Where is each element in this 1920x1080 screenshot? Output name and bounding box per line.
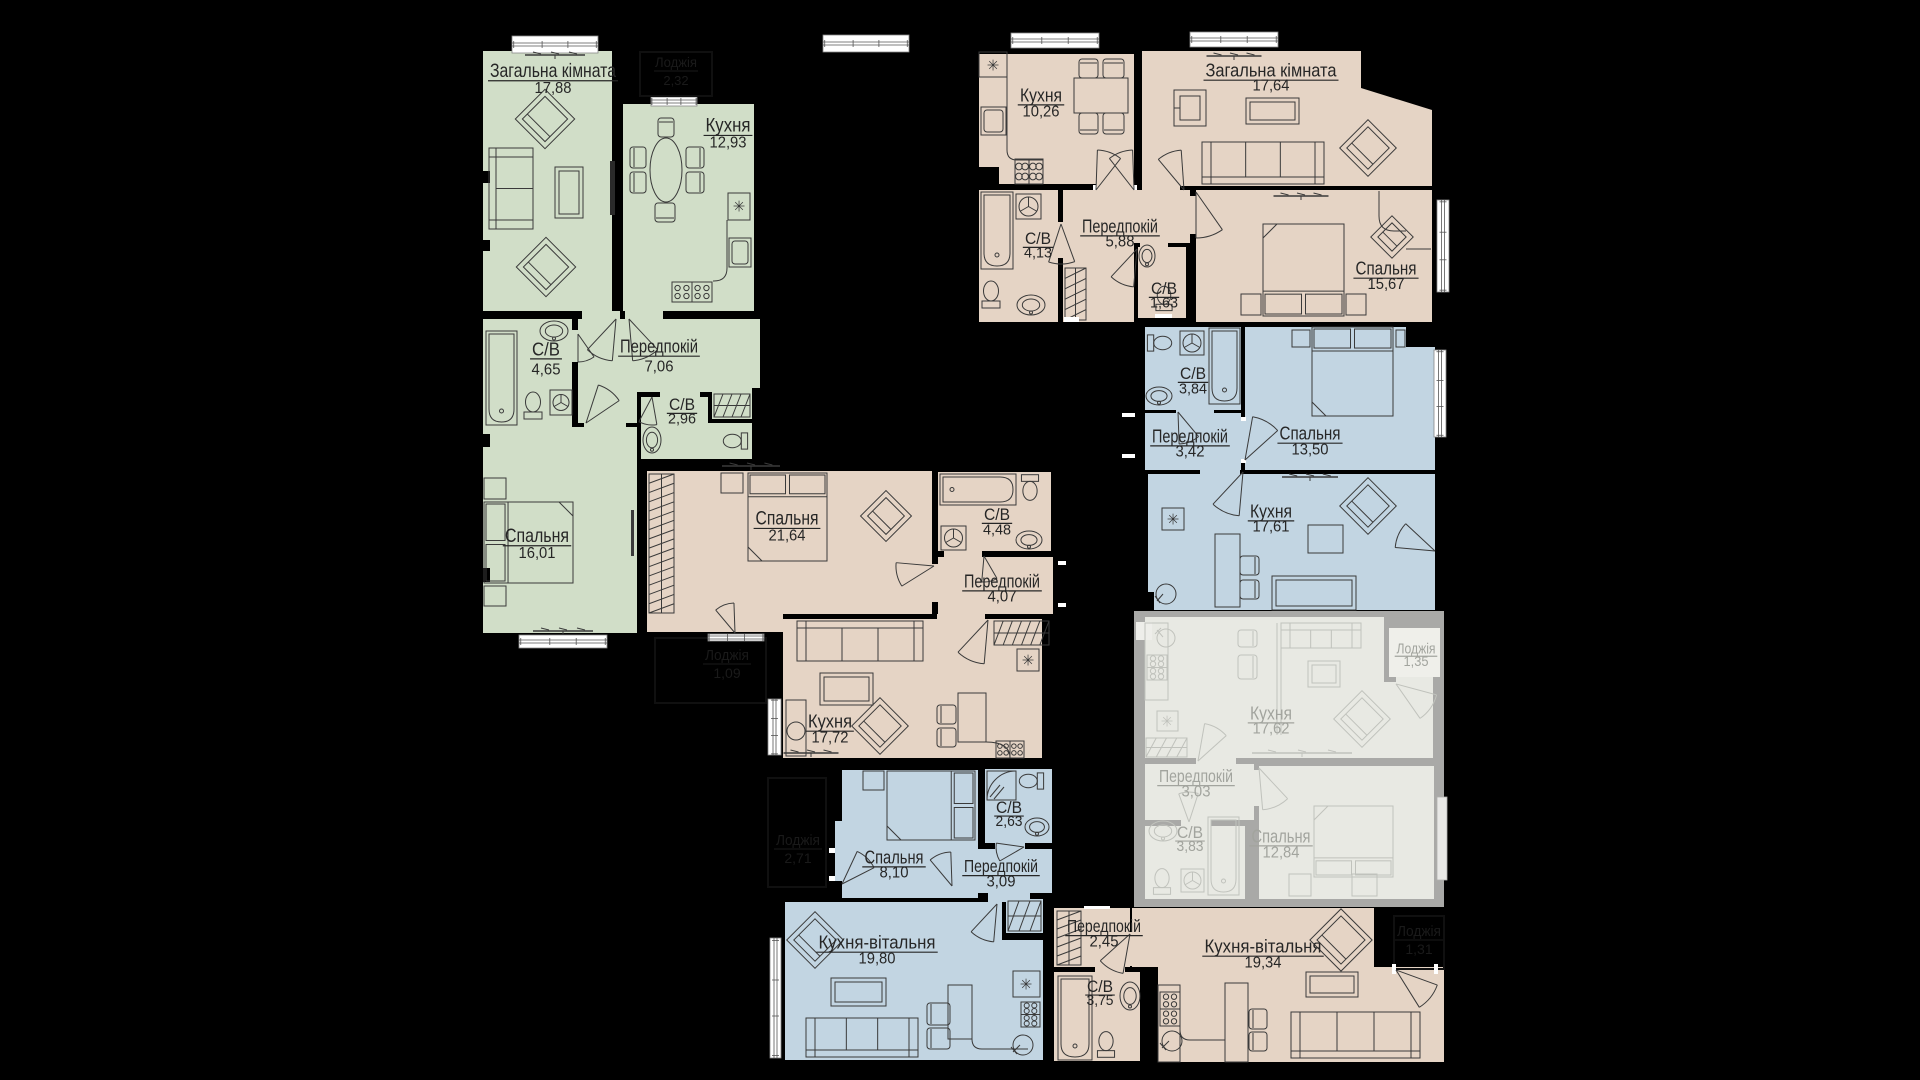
svg-text:✳: ✳ (1022, 652, 1035, 669)
svg-text:1,31: 1,31 (1405, 941, 1432, 957)
svg-text:17,61: 17,61 (1253, 519, 1290, 536)
svg-text:✳: ✳ (1167, 511, 1180, 528)
svg-text:С/В: С/В (532, 339, 560, 359)
svg-text:12,84: 12,84 (1263, 845, 1300, 862)
svg-text:3,84: 3,84 (1179, 380, 1207, 397)
svg-text:16,01: 16,01 (519, 545, 556, 562)
svg-text:17,62: 17,62 (1253, 721, 1290, 738)
svg-text:✳: ✳ (733, 198, 746, 215)
svg-text:3,83: 3,83 (1177, 839, 1204, 855)
svg-text:Лоджія: Лоджія (1397, 923, 1441, 940)
svg-text:Лоджія: Лоджія (655, 54, 697, 70)
svg-text:Спальня: Спальня (505, 525, 569, 547)
svg-text:19,34: 19,34 (1245, 955, 1282, 972)
svg-text:✳: ✳ (1020, 976, 1033, 993)
svg-text:1,35: 1,35 (1404, 654, 1429, 669)
svg-text:8,10: 8,10 (880, 865, 909, 882)
svg-text:4,48: 4,48 (983, 521, 1011, 538)
svg-text:2,71: 2,71 (784, 850, 811, 866)
svg-text:17,64: 17,64 (1253, 78, 1290, 95)
svg-text:Передпокій: Передпокій (620, 336, 698, 357)
svg-text:4,07: 4,07 (988, 589, 1017, 606)
svg-text:5,88: 5,88 (1106, 234, 1135, 251)
svg-text:4,13: 4,13 (1024, 244, 1052, 261)
svg-text:19,80: 19,80 (859, 951, 896, 968)
svg-text:7,06: 7,06 (645, 359, 674, 376)
svg-text:3,03: 3,03 (1182, 784, 1211, 801)
svg-text:2,45: 2,45 (1090, 934, 1119, 951)
svg-text:Лоджія: Лоджія (705, 647, 749, 664)
svg-text:✳: ✳ (1161, 713, 1174, 730)
svg-text:2,96: 2,96 (668, 410, 696, 427)
svg-text:3,42: 3,42 (1176, 444, 1205, 461)
svg-text:Кухня-вітальня: Кухня-вітальня (1205, 936, 1322, 957)
svg-text:2,63: 2,63 (996, 814, 1023, 830)
svg-text:Спальня: Спальня (1252, 826, 1311, 846)
svg-text:2,32: 2,32 (663, 73, 688, 88)
svg-text:3,75: 3,75 (1087, 993, 1114, 1009)
svg-text:Спальня: Спальня (1280, 423, 1341, 444)
svg-text:12,93: 12,93 (710, 134, 747, 151)
svg-text:Кухня-вітальня: Кухня-вітальня (819, 932, 936, 953)
svg-text:10,26: 10,26 (1023, 104, 1060, 121)
svg-text:Лоджія: Лоджія (776, 832, 820, 849)
svg-text:13,50: 13,50 (1292, 442, 1329, 459)
svg-text:21,64: 21,64 (769, 527, 806, 544)
svg-text:17,72: 17,72 (812, 730, 849, 747)
svg-text:✳: ✳ (987, 57, 1000, 74)
svg-text:3,09: 3,09 (987, 874, 1016, 891)
svg-text:Загальна кімната: Загальна кімната (490, 60, 616, 82)
svg-text:4,65: 4,65 (532, 362, 561, 379)
svg-text:Кухня: Кухня (808, 711, 852, 732)
svg-text:1,63: 1,63 (1150, 294, 1178, 311)
svg-text:15,67: 15,67 (1368, 276, 1405, 293)
svg-text:Кухня: Кухня (1020, 85, 1062, 105)
svg-text:17,88: 17,88 (535, 80, 572, 97)
svg-text:1,09: 1,09 (713, 665, 740, 681)
